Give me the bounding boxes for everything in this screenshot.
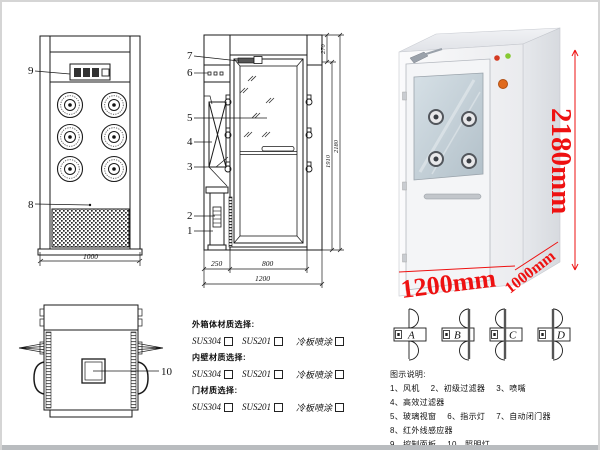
legend-item: 5、玻璃视窗 <box>390 412 436 421</box>
emergency-button <box>499 80 508 89</box>
material-option: SUS201 <box>242 402 296 412</box>
product-photo: 2180mm 1200mm 1000mm <box>384 22 596 307</box>
checkbox-icon <box>335 403 344 412</box>
checkbox-icon <box>274 403 283 412</box>
body-outline <box>40 305 142 417</box>
material-option: 冷板喷涂 <box>296 368 344 381</box>
door <box>230 55 307 247</box>
legend-item: 1、风机 <box>390 384 420 393</box>
checkbox-icon <box>224 337 233 346</box>
dim-1910: 1910 <box>325 154 332 168</box>
svg-text:1: 1 <box>187 225 193 237</box>
front-view-drawing: 1000 9 8 <box>27 30 157 270</box>
checkbox-icon <box>224 370 233 379</box>
photo-dim-height: 2180mm <box>545 108 577 214</box>
svg-text:6: 6 <box>187 67 193 79</box>
glass-hatching <box>240 76 274 137</box>
svg-text:3: 3 <box>187 161 193 173</box>
door-handle <box>424 194 481 199</box>
top-view-drawing: 10 <box>17 302 187 447</box>
material-section-title: 内壁材质选择: <box>192 349 362 366</box>
material-options-row: SUS304 SUS201 冷板喷涂 <box>192 366 362 382</box>
material-option: SUS304 <box>192 402 242 412</box>
legend: 图示说明: 1、风机2、初级过滤器3、喷嘴4、高效过滤器 5、玻璃视窗6、指示灯… <box>390 368 596 450</box>
svg-text:8: 8 <box>28 199 34 211</box>
dim-1200: 1200 <box>255 274 270 283</box>
door-type-c-icon: C <box>484 306 530 362</box>
svg-text:4: 4 <box>187 136 193 148</box>
return-air-grille <box>52 209 129 247</box>
checkbox-icon <box>274 370 283 379</box>
callouts: 7 6 5 4 3 2 1 <box>187 50 267 237</box>
material-option: SUS201 <box>242 336 296 346</box>
legend-item: 3、喷嘴 <box>496 384 526 393</box>
legend-row: 1、风机2、初级过滤器3、喷嘴4、高效过滤器 <box>390 382 596 410</box>
checkbox-icon <box>335 370 344 379</box>
door-closer <box>238 57 262 64</box>
material-option: 冷板喷涂 <box>296 335 344 348</box>
dim-width-label: 1000 <box>83 252 98 261</box>
dim-250: 250 <box>211 259 223 268</box>
legend-item: 7、自动闭门器 <box>496 412 551 421</box>
hepa-filter <box>204 96 227 186</box>
nozzles <box>58 93 127 182</box>
material-option: SUS304 <box>192 336 242 346</box>
fan-filter-column <box>206 187 232 250</box>
legend-row: 5、玻璃视窗6、指示灯7、自动闭门器8、红外线感应器 <box>390 410 596 438</box>
material-options-row: SUS304 SUS201 冷板喷涂 <box>192 333 362 349</box>
air-shower-spec-sheet: 1000 9 8 <box>0 0 600 450</box>
cabinet-outline <box>204 35 322 250</box>
material-options-row: SUS304 SUS201 冷板喷涂 <box>192 399 362 415</box>
material-section-title: 外箱体材质选择: <box>192 316 362 333</box>
dim-270: 270 <box>320 44 327 55</box>
hinge-wings <box>19 342 163 354</box>
svg-text:7: 7 <box>187 50 193 62</box>
red-button <box>494 55 500 61</box>
svg-text:D: D <box>556 330 565 342</box>
checkbox-icon <box>335 337 344 346</box>
legend-item: 6、指示灯 <box>447 412 485 421</box>
dim-800: 800 <box>262 259 274 268</box>
svg-text:A: A <box>407 330 415 342</box>
green-button <box>505 53 511 59</box>
svg-text:B: B <box>454 330 461 342</box>
material-option: 冷板喷涂 <box>296 401 344 414</box>
svg-text:C: C <box>509 330 517 342</box>
material-section-title: 门材质选择: <box>192 382 362 399</box>
checkbox-icon <box>274 337 283 346</box>
door-handle <box>262 147 294 152</box>
svg-text:5: 5 <box>187 112 193 124</box>
door-type-a-icon: A <box>388 306 434 362</box>
control-panel <box>70 64 110 80</box>
side-view-drawing: 7 6 5 4 3 2 1 <box>182 20 352 305</box>
callout-9: 9 <box>28 65 70 77</box>
checkbox-icon <box>224 403 233 412</box>
legend-item: 4、高效过滤器 <box>390 398 445 407</box>
svg-text:9: 9 <box>28 65 34 77</box>
legend-title: 图示说明: <box>390 368 596 382</box>
bottom-border-strip <box>2 445 600 450</box>
dim-2180: 2180 <box>333 139 340 153</box>
material-option: SUS201 <box>242 369 296 379</box>
door-front <box>403 59 491 290</box>
door-type-options: A B C D <box>388 306 578 362</box>
svg-text:10: 10 <box>161 366 173 378</box>
door-type-d-icon: D <box>532 306 578 362</box>
material-selection: 外箱体材质选择: SUS304 SUS201 冷板喷涂 内壁材质选择: SUS3… <box>192 316 362 415</box>
legend-item: 8、红外线感应器 <box>390 426 453 435</box>
material-option: SUS304 <box>192 369 242 379</box>
svg-text:2: 2 <box>187 210 193 222</box>
indicator-lights <box>208 72 223 75</box>
legend-item: 2、初级过滤器 <box>431 384 486 393</box>
door-type-b-icon: B <box>436 306 482 362</box>
